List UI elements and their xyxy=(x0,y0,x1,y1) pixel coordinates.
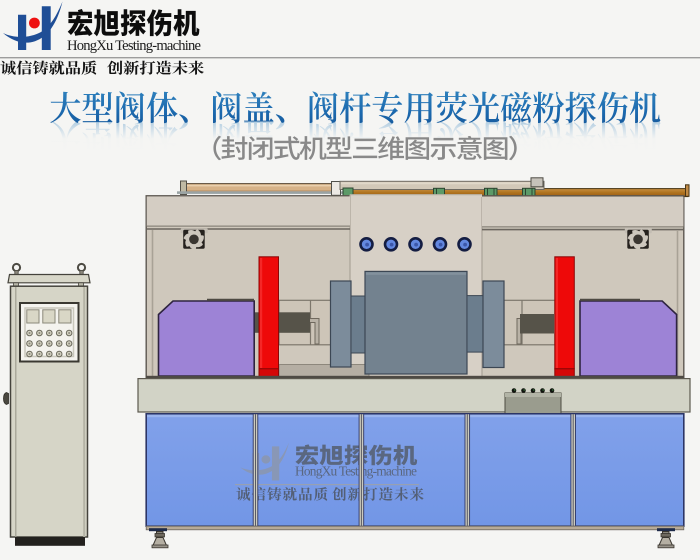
svg-text:HongXu Testing-machine: HongXu Testing-machine xyxy=(295,464,417,479)
svg-text:HongXu Testing-machine: HongXu Testing-machine xyxy=(67,38,201,54)
